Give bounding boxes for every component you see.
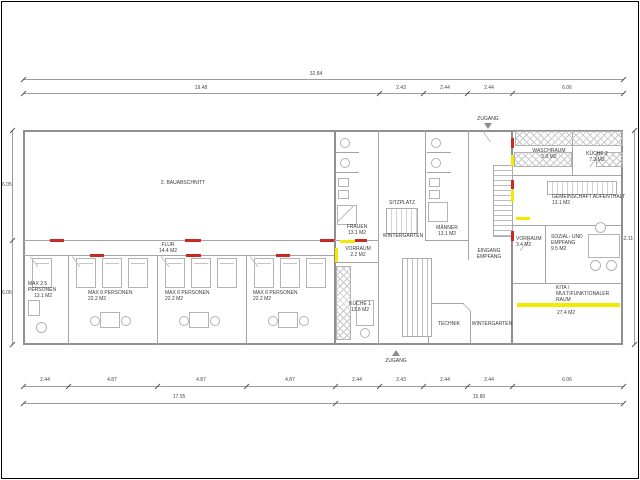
wall-corridor-top: [23, 240, 335, 241]
marking-red: [186, 254, 201, 257]
marking-red: [511, 180, 514, 189]
wall-maenner-right: [468, 130, 469, 260]
room-area: 13.1 M2: [28, 293, 56, 299]
room-area: 9.5 M2: [551, 246, 583, 252]
dim-label-left-upper: 6.05: [2, 182, 12, 188]
gemeinschaft-table: [547, 181, 617, 195]
wall-maenner-bottom: [425, 240, 468, 241]
room-label-kueche2: KÜCHE 2 7.3 M2: [586, 151, 608, 163]
toilet-icon: [340, 158, 350, 168]
wall-technik-right: [470, 311, 471, 343]
dim-label: 2.43: [396, 378, 406, 383]
dim-line-bottom-totals: [23, 403, 623, 404]
dim-line-top-total: [23, 79, 623, 80]
dim-label: 2.44: [484, 378, 494, 383]
room-label-waschraum: WASCHRAUM 5.0 M2: [532, 148, 565, 160]
marking-red: [90, 254, 104, 257]
room-label-kita: KITA / MULTIFUNKTIONALER RAUM: [556, 285, 609, 303]
wall-maenner-left: [425, 130, 426, 240]
room-label-wintergarten2: WINTERGARTEN: [472, 321, 512, 327]
staircase-upper: [493, 165, 513, 237]
dim-label: 2.44: [484, 86, 494, 91]
stall-divider: [335, 152, 359, 153]
room-area: 13.1 M2: [436, 231, 458, 237]
room-area: 2.2 M2: [345, 252, 371, 258]
room-area: 13.1 M2: [347, 230, 368, 236]
wall-bedroom-divider: [68, 255, 69, 345]
marking-red: [276, 254, 290, 257]
chair-icon: [299, 316, 309, 326]
room-label-sozial: SOZIAL- UND EMPFANG 9.5 M2: [551, 234, 583, 252]
dim-line-bottom-segments: [23, 386, 623, 387]
room-label-technik: TECHNIK: [438, 321, 460, 327]
exterior-wall-left: [23, 130, 25, 345]
room-area: 22.2 M2: [165, 296, 209, 302]
marking-yellow: [516, 217, 530, 220]
chair-icon: [268, 316, 278, 326]
wall-waschraum-bottom: [513, 175, 621, 176]
marking-red: [511, 138, 514, 148]
room-label-bauabschnitt: 2. BAUABSCHNITT: [161, 180, 205, 186]
room-area: 22.2 M2: [253, 296, 297, 302]
floor-plan-canvas: 32.84 19.48 2.43 2.44 2.44 6.06 2.44 4.8…: [0, 0, 640, 480]
room-label-kita-area: 27.4 M2: [557, 310, 575, 316]
exterior-wall-bottom: [23, 343, 623, 345]
sink-icon: [429, 190, 440, 199]
wall-bedroom-divider: [157, 255, 158, 345]
room-label-wintergarten1: WINTERGARTEN: [383, 233, 423, 239]
table: [100, 312, 120, 328]
chair-icon: [590, 260, 601, 271]
toilet-icon: [431, 138, 441, 148]
bed: [280, 258, 300, 288]
bed: [76, 258, 96, 288]
dim-label: 6.06: [562, 378, 572, 383]
table: [278, 312, 298, 328]
wall-vorraum1-bottom: [335, 262, 378, 263]
staircase-lower: [402, 258, 432, 337]
room-area: 13.8 M2: [349, 307, 371, 313]
room-label-eingang: EINGANG EMPFANG: [477, 248, 501, 260]
entrance-arrow-down-icon: [484, 123, 492, 129]
chair-icon: [360, 328, 370, 338]
dim-label: 19.48: [195, 86, 208, 91]
room-label-vorraum1: VORRAUM 2.2 M2: [345, 246, 371, 258]
wall-frauen-right: [378, 130, 379, 345]
room-area: 13.1 M2: [552, 200, 625, 206]
bed: [102, 258, 122, 288]
chair-icon: [179, 316, 189, 326]
room-label-bed1: MAX 2.5 PERSONEN 13.1 M2: [28, 281, 56, 299]
room-label-vorraum2: VORRAUM 3.4 M2: [516, 236, 542, 248]
stall-divider: [427, 172, 451, 173]
toilet-icon: [431, 158, 441, 168]
room-label-sitzplatz: SITZPLATZ: [389, 200, 415, 206]
marking-red: [185, 239, 201, 242]
marking-red: [511, 231, 514, 241]
stall-divider: [335, 172, 359, 173]
marking-red: [50, 239, 64, 242]
wall-kita-top: [513, 283, 621, 284]
room-area: 5.0 M2: [532, 154, 565, 160]
chair-icon: [121, 316, 131, 326]
chair-icon: [36, 322, 47, 333]
shower-icon: [337, 205, 357, 225]
shower-icon: [428, 202, 448, 222]
marking-yellow: [511, 190, 514, 202]
room-label-maenner: MÄNNER 13.1 M2: [436, 225, 458, 237]
chair-icon: [606, 260, 617, 271]
urinal-icon: [429, 178, 440, 187]
dim-line-top-segments: [23, 93, 623, 94]
toilet-icon: [340, 138, 350, 148]
room-area: 22.2 M2: [88, 296, 132, 302]
bed: [254, 258, 274, 288]
dim-label: 4.87: [196, 378, 206, 383]
dim-label: 2.44: [440, 86, 450, 91]
dim-line-right: [634, 130, 635, 345]
room-name: RAUM: [556, 297, 609, 303]
room-area: 7.3 M2: [586, 157, 608, 163]
room-label-bed4: MAX 6 PERSONEN 22.2 M2: [253, 290, 297, 302]
dim-label: 2.44: [40, 378, 50, 383]
table: [189, 312, 209, 328]
entrance-label-top: ZUGANG: [477, 116, 498, 122]
dim-label: 6.06: [562, 86, 572, 91]
room-label-bed3: MAX 6 PERSONEN 22.2 M2: [165, 290, 209, 302]
sink-icon: [338, 178, 349, 187]
bed: [165, 258, 185, 288]
sink-icon: [338, 190, 349, 199]
bed: [217, 258, 237, 288]
room-area: 3.4 M2: [516, 242, 542, 248]
chair-icon: [90, 316, 100, 326]
wardrobe: [28, 300, 40, 316]
wall-vorraum2-right: [545, 225, 546, 283]
room-name: EMPFANG: [477, 254, 501, 260]
room-label-bed2: MAX 6 PERSONEN 22.2 M2: [88, 290, 132, 302]
wall-bedroom-divider: [246, 255, 247, 345]
marking-yellow-kita-wall: [517, 303, 620, 307]
dim-label-top-total: 32.84: [310, 72, 323, 77]
marking-red: [355, 239, 367, 242]
desk: [588, 234, 620, 258]
entrance-arrow-up-icon: [392, 350, 400, 356]
bed: [306, 258, 326, 288]
kitchen-appliance-row: [515, 131, 623, 146]
dim-label: 2.43: [396, 86, 406, 91]
stall-divider: [427, 152, 451, 153]
room-label-flur: FLUR 14.4 M2: [159, 242, 177, 254]
sitzplatz-table: [386, 208, 418, 234]
room-label-kueche1: KÜCHE 1 13.8 M2: [349, 301, 371, 313]
dim-label: 4.87: [107, 378, 117, 383]
dim-label-left-lower: 6.06: [2, 290, 12, 296]
dim-label-bottom-total-left: 17.05: [173, 395, 186, 400]
dim-label: 4.87: [285, 378, 295, 383]
bed: [128, 258, 148, 288]
room-label-frauen: FRAUEN 13.1 M2: [347, 224, 368, 236]
room-area: 14.4 M2: [159, 248, 177, 254]
dim-label-bottom-total-right: 15.80: [473, 395, 486, 400]
wall-technik-top: [428, 303, 464, 304]
marking-red: [320, 239, 334, 242]
entrance-label-bottom: ZUGANG: [385, 358, 406, 364]
dim-label: 2.44: [352, 378, 362, 383]
chair-icon: [210, 316, 220, 326]
bed: [191, 258, 211, 288]
chair-icon: [595, 222, 606, 233]
marking-yellow: [335, 248, 338, 262]
marking-yellow: [340, 240, 355, 243]
dim-label: 2.44: [440, 378, 450, 383]
room-label-gemeinschaft: GEMEINSCHAFT AUFENTHALT 13.1 M2: [552, 194, 625, 206]
marking-yellow: [511, 155, 514, 166]
